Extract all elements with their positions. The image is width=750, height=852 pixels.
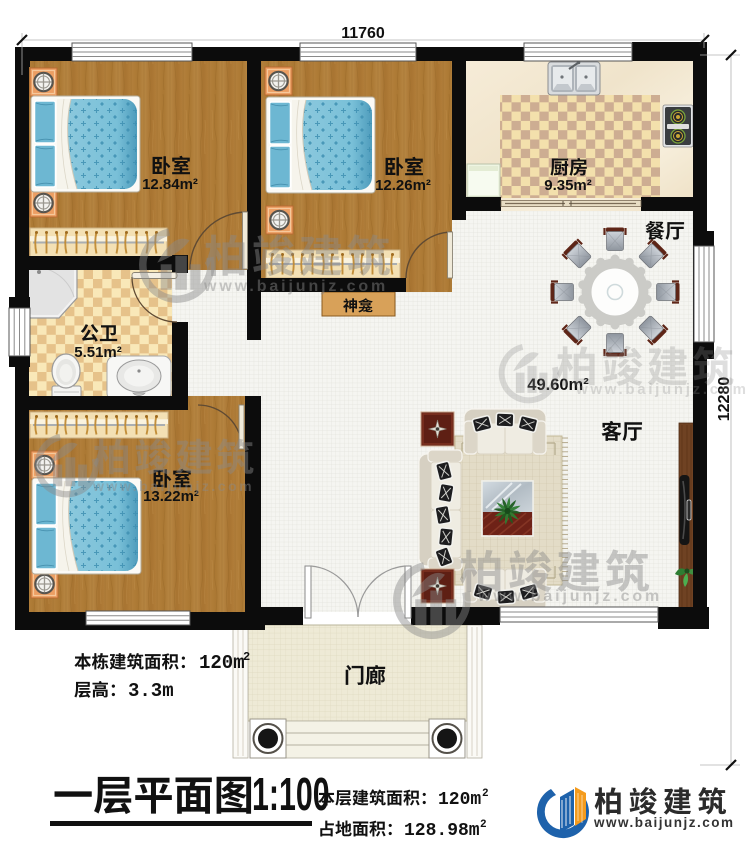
svg-text:120m: 120m <box>438 790 481 810</box>
svg-text:5.51m²: 5.51m² <box>74 344 122 361</box>
svg-text:12.84m²: 12.84m² <box>142 176 198 193</box>
svg-text:www.baijunjz.com: www.baijunjz.com <box>92 478 254 494</box>
svg-text:11760: 11760 <box>341 25 385 42</box>
svg-text:128.98m: 128.98m <box>404 821 480 841</box>
svg-text:120m: 120m <box>199 652 245 674</box>
svg-text:1:100: 1:100 <box>252 770 330 821</box>
svg-text:2: 2 <box>480 819 487 831</box>
svg-text:2: 2 <box>243 650 250 664</box>
svg-text:12.26m²: 12.26m² <box>375 177 431 194</box>
svg-text:www.baijunjz.com: www.baijunjz.com <box>575 381 749 398</box>
svg-text:www.baijunjz.com: www.baijunjz.com <box>593 815 735 830</box>
svg-text:2: 2 <box>482 788 489 800</box>
svg-text:www.baijunjz.com: www.baijunjz.com <box>203 278 388 295</box>
svg-text:9.35m²: 9.35m² <box>544 177 592 194</box>
svg-text:www.baijunjz.com: www.baijunjz.com <box>477 588 662 605</box>
svg-text:3.3m: 3.3m <box>128 680 174 702</box>
